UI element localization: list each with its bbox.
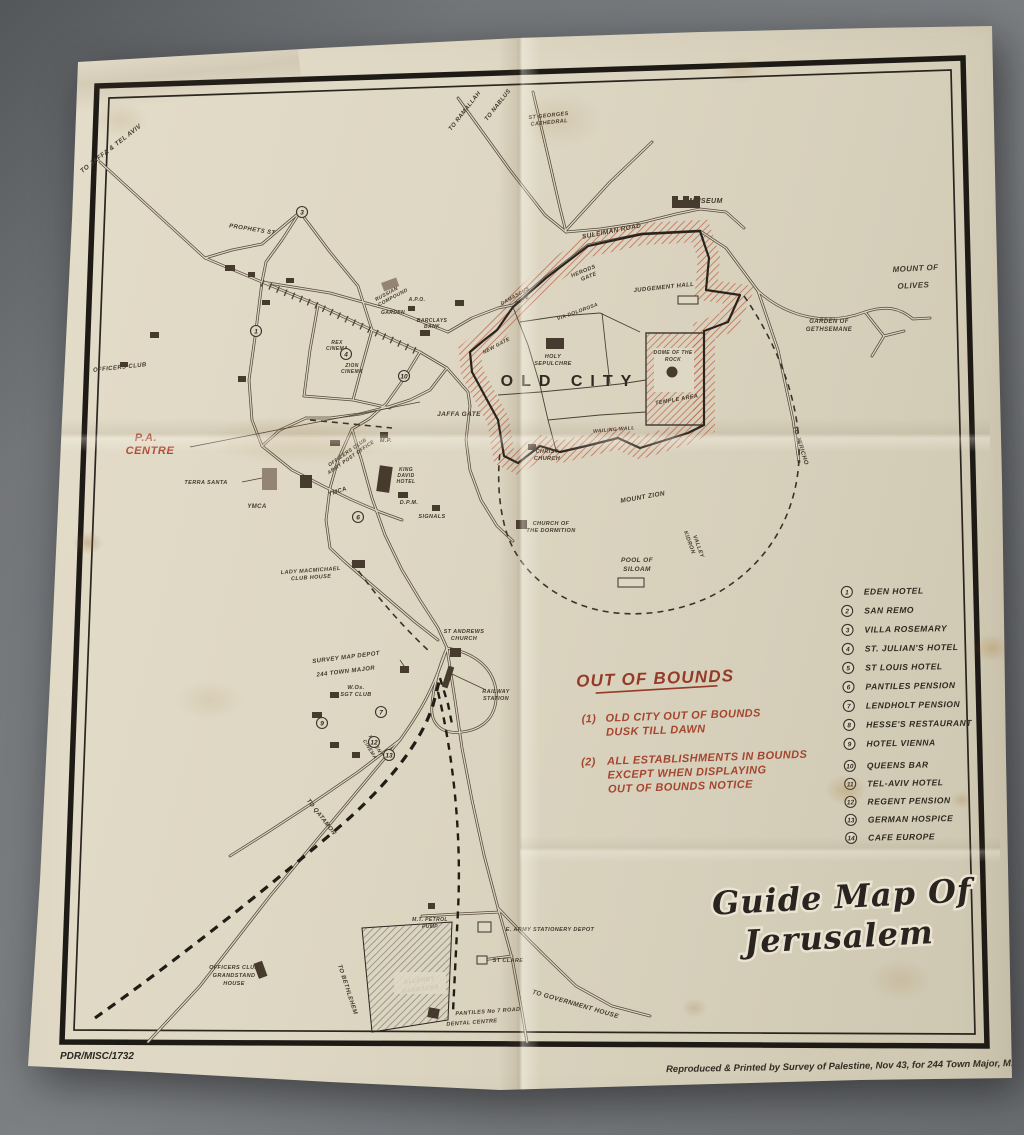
label-to-qatamon: TO QATAMON — [305, 798, 337, 837]
label-via-dolorosa: VIA DOLOROSA — [556, 302, 599, 322]
svg-text:RAILWAY: RAILWAY — [482, 689, 510, 695]
label-king-david-hotel: KING DAVID HOTEL — [397, 467, 416, 485]
svg-text:HOUSE: HOUSE — [223, 981, 245, 987]
label-wos-sgt-club: W.Os. SGT CLUB — [340, 685, 371, 698]
svg-text:SAN REMO: SAN REMO — [864, 605, 914, 616]
label-stationery-depot: E. ARMY STATIONERY DEPOT — [506, 927, 595, 933]
svg-text:4: 4 — [845, 646, 850, 653]
marker-7: 7 — [376, 707, 387, 718]
svg-text:14: 14 — [847, 835, 855, 842]
map-title: Guide Map Of Jerusalem — [711, 871, 979, 963]
legend: 1EDEN HOTEL 2SAN REMO 3VILLA ROSEMARY 4S… — [841, 584, 974, 843]
label-pantiles-dental: PANTILES No 7 ROAD DENTAL CENTRE — [446, 1007, 520, 1028]
catalog-number: PDR/MISC/1732 — [60, 1051, 134, 1062]
map-title-line-2: Jerusalem — [737, 913, 934, 961]
label-signals: SIGNALS — [418, 514, 445, 520]
legend-item: 7LENDHOLT PENSION — [843, 698, 960, 711]
svg-text:CENTRE: CENTRE — [126, 445, 175, 457]
legend-item: 10QUEENS BAR — [844, 759, 929, 771]
svg-text:SGT CLUB: SGT CLUB — [340, 692, 371, 698]
label-holy-sepulchre: HOLY SEPULCHRE — [534, 354, 572, 367]
svg-text:HOLY: HOLY — [545, 354, 562, 360]
label-apo: A.P.O. — [408, 297, 426, 303]
svg-text:GETHSEMANE: GETHSEMANE — [806, 327, 853, 333]
label-to-nablus: TO NABLUS — [484, 88, 512, 122]
svg-text:THE DORMITION: THE DORMITION — [526, 528, 576, 534]
svg-text:12: 12 — [370, 740, 378, 747]
legend-item: 3VILLA ROSEMARY — [842, 623, 948, 636]
svg-text:SILOAM: SILOAM — [623, 566, 651, 573]
svg-text:12: 12 — [847, 799, 855, 806]
label-museum: MUSEUM — [689, 198, 723, 205]
svg-text:BANK: BANK — [424, 324, 440, 330]
label-lady-macmichael: LADY MACMICHAEL CLUB HOUSE — [281, 566, 342, 583]
svg-text:PANTILES PENSION: PANTILES PENSION — [865, 680, 956, 692]
label-mount-zion: MOUNT ZION — [620, 490, 666, 505]
svg-text:2: 2 — [844, 608, 849, 615]
svg-text:CHURCH: CHURCH — [534, 456, 561, 462]
svg-text:PANTILES No 7 ROAD: PANTILES No 7 ROAD — [455, 1007, 520, 1018]
marker-1: 1 — [251, 326, 262, 337]
legend-item: 6PANTILES PENSION — [843, 680, 956, 693]
label-terra-santa: TERRA SANTA — [184, 480, 227, 486]
svg-text:CINEMA: CINEMA — [341, 369, 363, 375]
svg-text:QUEENS BAR: QUEENS BAR — [867, 760, 929, 771]
svg-text:REGENT PENSION: REGENT PENSION — [867, 795, 951, 806]
oob-item-2-num: (2) — [581, 756, 596, 769]
svg-text:OLIVES: OLIVES — [897, 280, 929, 291]
svg-text:CHRIST: CHRIST — [536, 449, 559, 455]
svg-text:7: 7 — [379, 710, 383, 717]
label-barclays-bank: BARCLAYS BANK — [417, 318, 448, 330]
legend-item: 11TEL-AVIV HOTEL — [845, 777, 944, 790]
label-christ-church: CHRIST CHURCH — [534, 449, 561, 462]
svg-text:3: 3 — [300, 210, 304, 217]
label-garden: GARDEN — [381, 310, 405, 316]
svg-text:CHURCH OF: CHURCH OF — [533, 521, 570, 527]
svg-text:1: 1 — [254, 329, 258, 336]
oob-item-1-line-1: OLD CITY OUT OF BOUNDS — [605, 707, 761, 724]
legend-item: 14CAFE EUROPE — [846, 831, 936, 844]
label-jaffa-gate: JAFFA GATE — [437, 411, 481, 418]
svg-text:TEL-AVIV HOTEL: TEL-AVIV HOTEL — [867, 777, 943, 788]
label-gethsemane: GARDEN OF GETHSEMANE — [806, 319, 853, 333]
marker-4: 4 — [341, 349, 352, 360]
svg-text:P.A.: P.A. — [135, 432, 157, 444]
svg-text:SURVEY MAP DEPOT: SURVEY MAP DEPOT — [312, 651, 381, 665]
marker-6: 6 — [353, 512, 364, 523]
out-of-bounds-heading: OUT OF BOUNDS — [576, 666, 735, 691]
label-officers-club-grandstand: OFFICERS CLUB GRANDSTAND HOUSE — [209, 965, 259, 987]
svg-text:ST ANDREWS: ST ANDREWS — [444, 629, 485, 635]
svg-text:ST LOUIS HOTEL: ST LOUIS HOTEL — [865, 661, 943, 672]
label-mount-of-olives: MOUNT OF OLIVES — [892, 263, 940, 291]
svg-text:8: 8 — [847, 722, 851, 729]
svg-text:POOL OF: POOL OF — [621, 557, 654, 564]
svg-text:6: 6 — [356, 515, 360, 522]
svg-text:5: 5 — [846, 665, 850, 672]
label-mp: M.P. — [380, 438, 392, 444]
legend-item: 9HOTEL VIENNA — [844, 737, 936, 750]
label-prophets-st: PROPHETS ST — [229, 223, 277, 236]
label-pool-of-siloam: POOL OF SILOAM — [621, 557, 654, 573]
label-zion-cinema: ZION CINEMA — [341, 363, 363, 375]
svg-text:13: 13 — [385, 753, 393, 760]
svg-text:11: 11 — [847, 781, 854, 788]
legend-item: 4ST. JULIAN'S HOTEL — [842, 641, 958, 654]
label-ymca-2: YMCA — [247, 504, 266, 510]
label-railway-station: RAILWAY STATION — [482, 689, 510, 702]
oob-item-1-line-2: DUSK TILL DAWN — [606, 723, 707, 738]
legend-item: 1EDEN HOTEL — [841, 585, 923, 597]
svg-text:VILLA ROSEMARY: VILLA ROSEMARY — [864, 623, 948, 634]
paper-shadow-wrap: TO JAFFA & TEL AVIV TO RAMALLAH TO NABLU… — [0, 0, 1024, 1135]
label-st-clare: ST CLARE — [493, 958, 524, 964]
marker-9: 9 — [317, 718, 328, 729]
svg-text:244 TOWN MAJOR: 244 TOWN MAJOR — [315, 665, 375, 678]
svg-text:HESSE'S RESTAURANT: HESSE'S RESTAURANT — [866, 718, 972, 730]
oob-item-2-line-1: ALL ESTABLISHMENTS IN BOUNDS — [606, 749, 808, 768]
svg-text:GRANDSTAND: GRANDSTAND — [213, 973, 256, 979]
svg-text:MOUNT OF: MOUNT OF — [892, 263, 939, 274]
label-st-andrews-church: ST ANDREWS CHURCH — [444, 629, 485, 642]
label-dormition: CHURCH OF THE DORMITION — [526, 521, 576, 534]
map-paper: TO JAFFA & TEL AVIV TO RAMALLAH TO NABLU… — [0, 0, 1024, 1135]
svg-text:GERMAN HOSPICE: GERMAN HOSPICE — [868, 813, 954, 824]
svg-text:DENTAL CENTRE: DENTAL CENTRE — [446, 1018, 497, 1028]
svg-text:10: 10 — [846, 763, 854, 770]
svg-text:STATION: STATION — [483, 696, 510, 702]
svg-text:OFFICERS CLUB: OFFICERS CLUB — [209, 965, 259, 971]
marker-13: 13 — [384, 750, 395, 761]
label-to-bethlehem: TO BETHLEHEM — [336, 964, 358, 1016]
svg-text:CAFE EUROPE: CAFE EUROPE — [868, 831, 935, 842]
label-dpm: D.P.M. — [400, 500, 419, 506]
map-title-line-1: Guide Map Of — [711, 871, 977, 923]
svg-text:W.Os.: W.Os. — [347, 685, 364, 691]
svg-text:EDEN HOTEL: EDEN HOTEL — [864, 586, 924, 597]
svg-text:LENDHOLT PENSION: LENDHOLT PENSION — [866, 699, 961, 711]
svg-text:9: 9 — [320, 721, 324, 728]
label-st-georges-cathedral: ST GEORGES CATHEDRAL — [528, 111, 570, 128]
allenby-barracks-area — [362, 922, 452, 1032]
svg-text:DOME OF THE: DOME OF THE — [653, 350, 692, 356]
oob-item-2-line-3: OUT OF BOUNDS NOTICE — [608, 779, 753, 796]
jerusalem-guide-map: TO JAFFA & TEL AVIV TO RAMALLAH TO NABLU… — [0, 0, 1024, 1135]
svg-text:HOTEL VIENNA: HOTEL VIENNA — [866, 737, 935, 748]
imprint: Reproduced & Printed by Survey of Palest… — [666, 1058, 1024, 1075]
label-old-city: OLD CITY — [501, 373, 640, 390]
svg-text:9: 9 — [848, 741, 852, 748]
legend-item: 8HESSE'S RESTAURANT — [844, 717, 973, 730]
out-of-bounds-notice: OUT OF BOUNDS (1) OLD CITY OUT OF BOUNDS… — [576, 664, 809, 797]
svg-text:GARDEN OF: GARDEN OF — [809, 319, 849, 325]
label-judgement-hall: JUDGEMENT HALL — [633, 282, 694, 294]
svg-text:7: 7 — [847, 703, 851, 710]
legend-item: 2SAN REMO — [842, 604, 914, 616]
photo-backdrop: TO JAFFA & TEL AVIV TO RAMALLAH TO NABLU… — [0, 0, 1024, 1135]
svg-text:ROCK: ROCK — [665, 357, 681, 363]
svg-text:HOTEL: HOTEL — [397, 479, 416, 485]
svg-text:3: 3 — [846, 627, 850, 634]
label-survey-map-depot: SURVEY MAP DEPOT 244 TOWN MAJOR — [312, 651, 383, 679]
svg-text:CHURCH: CHURCH — [451, 636, 478, 642]
legend-item: 13GERMAN HOSPICE — [845, 813, 953, 826]
legend-item: 5ST LOUIS HOTEL — [843, 661, 943, 674]
svg-text:SEPULCHRE: SEPULCHRE — [534, 361, 572, 367]
svg-text:1: 1 — [845, 589, 849, 596]
svg-text:4: 4 — [343, 352, 348, 359]
oob-item-1-num: (1) — [581, 713, 596, 726]
label-to-government-house: TO GOVERNMENT HOUSE — [531, 989, 620, 1021]
marker-10: 10 — [399, 371, 410, 382]
label-to-jaffa: TO JAFFA & TEL AVIV — [79, 123, 143, 175]
marker-3: 3 — [297, 207, 308, 218]
marker-12: 12 — [369, 737, 380, 748]
svg-text:6: 6 — [847, 684, 851, 691]
svg-text:13: 13 — [847, 817, 855, 824]
svg-text:10: 10 — [400, 374, 408, 381]
label-pa-centre: P.A. CENTRE — [126, 432, 175, 457]
legend-item: 12REGENT PENSION — [845, 795, 951, 808]
label-kidron-valley: KIDRON VALLEY — [682, 530, 705, 559]
svg-text:ST. JULIAN'S HOTEL: ST. JULIAN'S HOTEL — [865, 642, 959, 654]
svg-text:M.T. PETROL: M.T. PETROL — [412, 917, 448, 923]
